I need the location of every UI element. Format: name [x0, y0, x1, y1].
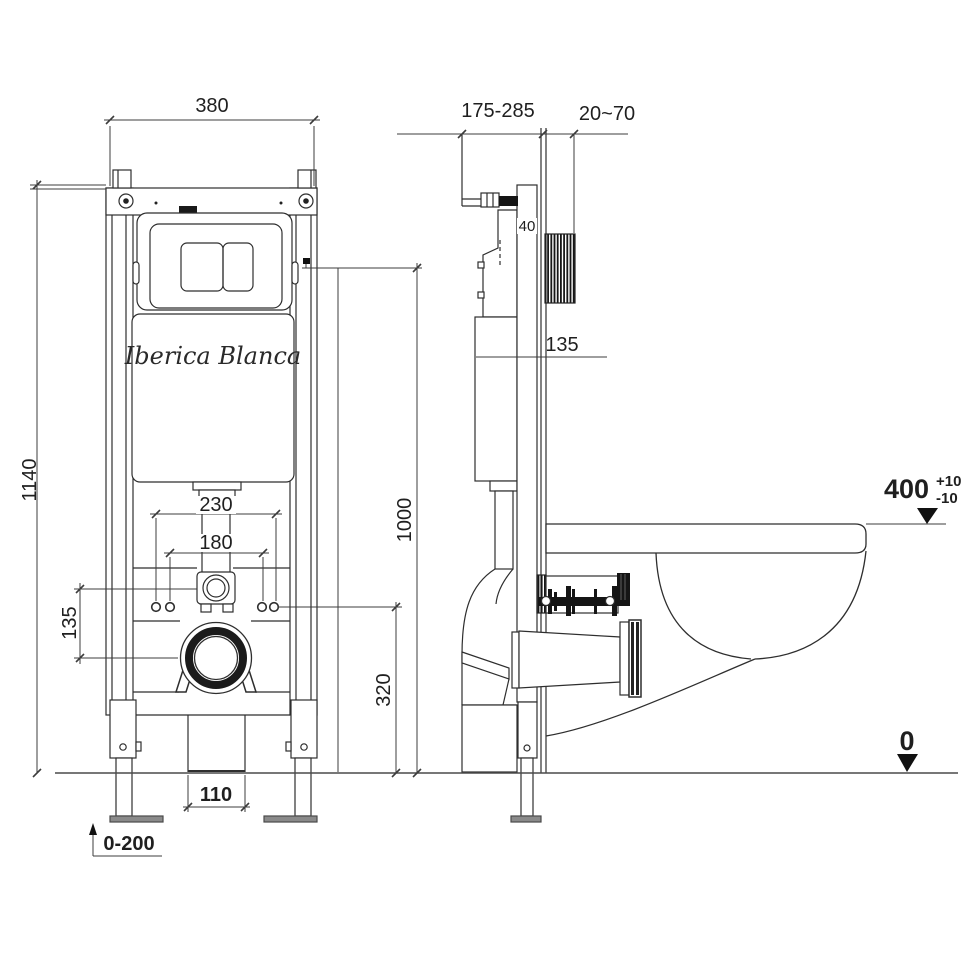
cistern-side-upper: [478, 210, 517, 317]
right-foot-plate: [264, 816, 317, 822]
dim-overall-width: [104, 116, 320, 186]
drain-connector-side: [512, 620, 641, 697]
dim-rim-tol-minus: -10: [936, 490, 958, 507]
bowl-rim: [546, 524, 866, 553]
dim-tank-level-label: 135: [545, 334, 578, 356]
toilet-bowl-profile: [546, 524, 866, 736]
flush-plate-assembly: [133, 206, 298, 310]
dim-rim-tol-plus: +10: [936, 473, 961, 490]
dim-bolt-outer-label: 230: [199, 494, 232, 516]
dim-inlet-offset-label: 135: [59, 606, 81, 639]
left-foot-plate: [110, 816, 163, 822]
flush-bend-side: [462, 481, 517, 772]
dim-flush-height-label: 1000: [394, 498, 416, 543]
dim-bolt-inner-label: 180: [199, 532, 232, 554]
dim-rim-height-label: 400: [884, 474, 929, 504]
brand-logo: Iberica Blanca: [124, 342, 301, 370]
dim-depth-range-label: 175-285: [461, 100, 534, 122]
wall-bracket: [462, 134, 518, 207]
top-crossbar: [106, 170, 317, 215]
level-floor-label: 0: [899, 726, 914, 756]
elbow-housing: [462, 705, 517, 772]
fixing-rod-assembly: [537, 573, 630, 616]
side-foot-plate: [511, 816, 541, 822]
plate-shaft-sleeve: [545, 234, 575, 303]
dim-inlet-offset: [74, 583, 197, 664]
dim-overall-height: [30, 180, 106, 777]
cistern-side-tank: [475, 317, 517, 481]
drain-outlet-ring: [176, 623, 256, 694]
dim-rail-depth-label: 40: [519, 218, 536, 235]
level-floor-marker: [897, 754, 918, 772]
cistern-tank-front: [132, 314, 294, 482]
dim-shaft-range-label: 20~70: [579, 103, 635, 125]
installation-drawing: Iberica Blanca: [0, 0, 970, 970]
level-rim-height: [866, 508, 946, 524]
flush-plate: [150, 224, 282, 308]
dim-outlet-width-label: 110: [200, 784, 232, 806]
dim-leg-range-label: 0-200: [103, 833, 154, 855]
drain-box: [188, 715, 245, 772]
dim-overall-height-label: 1140: [19, 458, 41, 501]
wc-frame-technical-drawing: Iberica Blanca: [0, 0, 970, 970]
dim-overall-width-label: 380: [195, 95, 228, 117]
dim-fixing-height-label: 320: [373, 673, 395, 706]
